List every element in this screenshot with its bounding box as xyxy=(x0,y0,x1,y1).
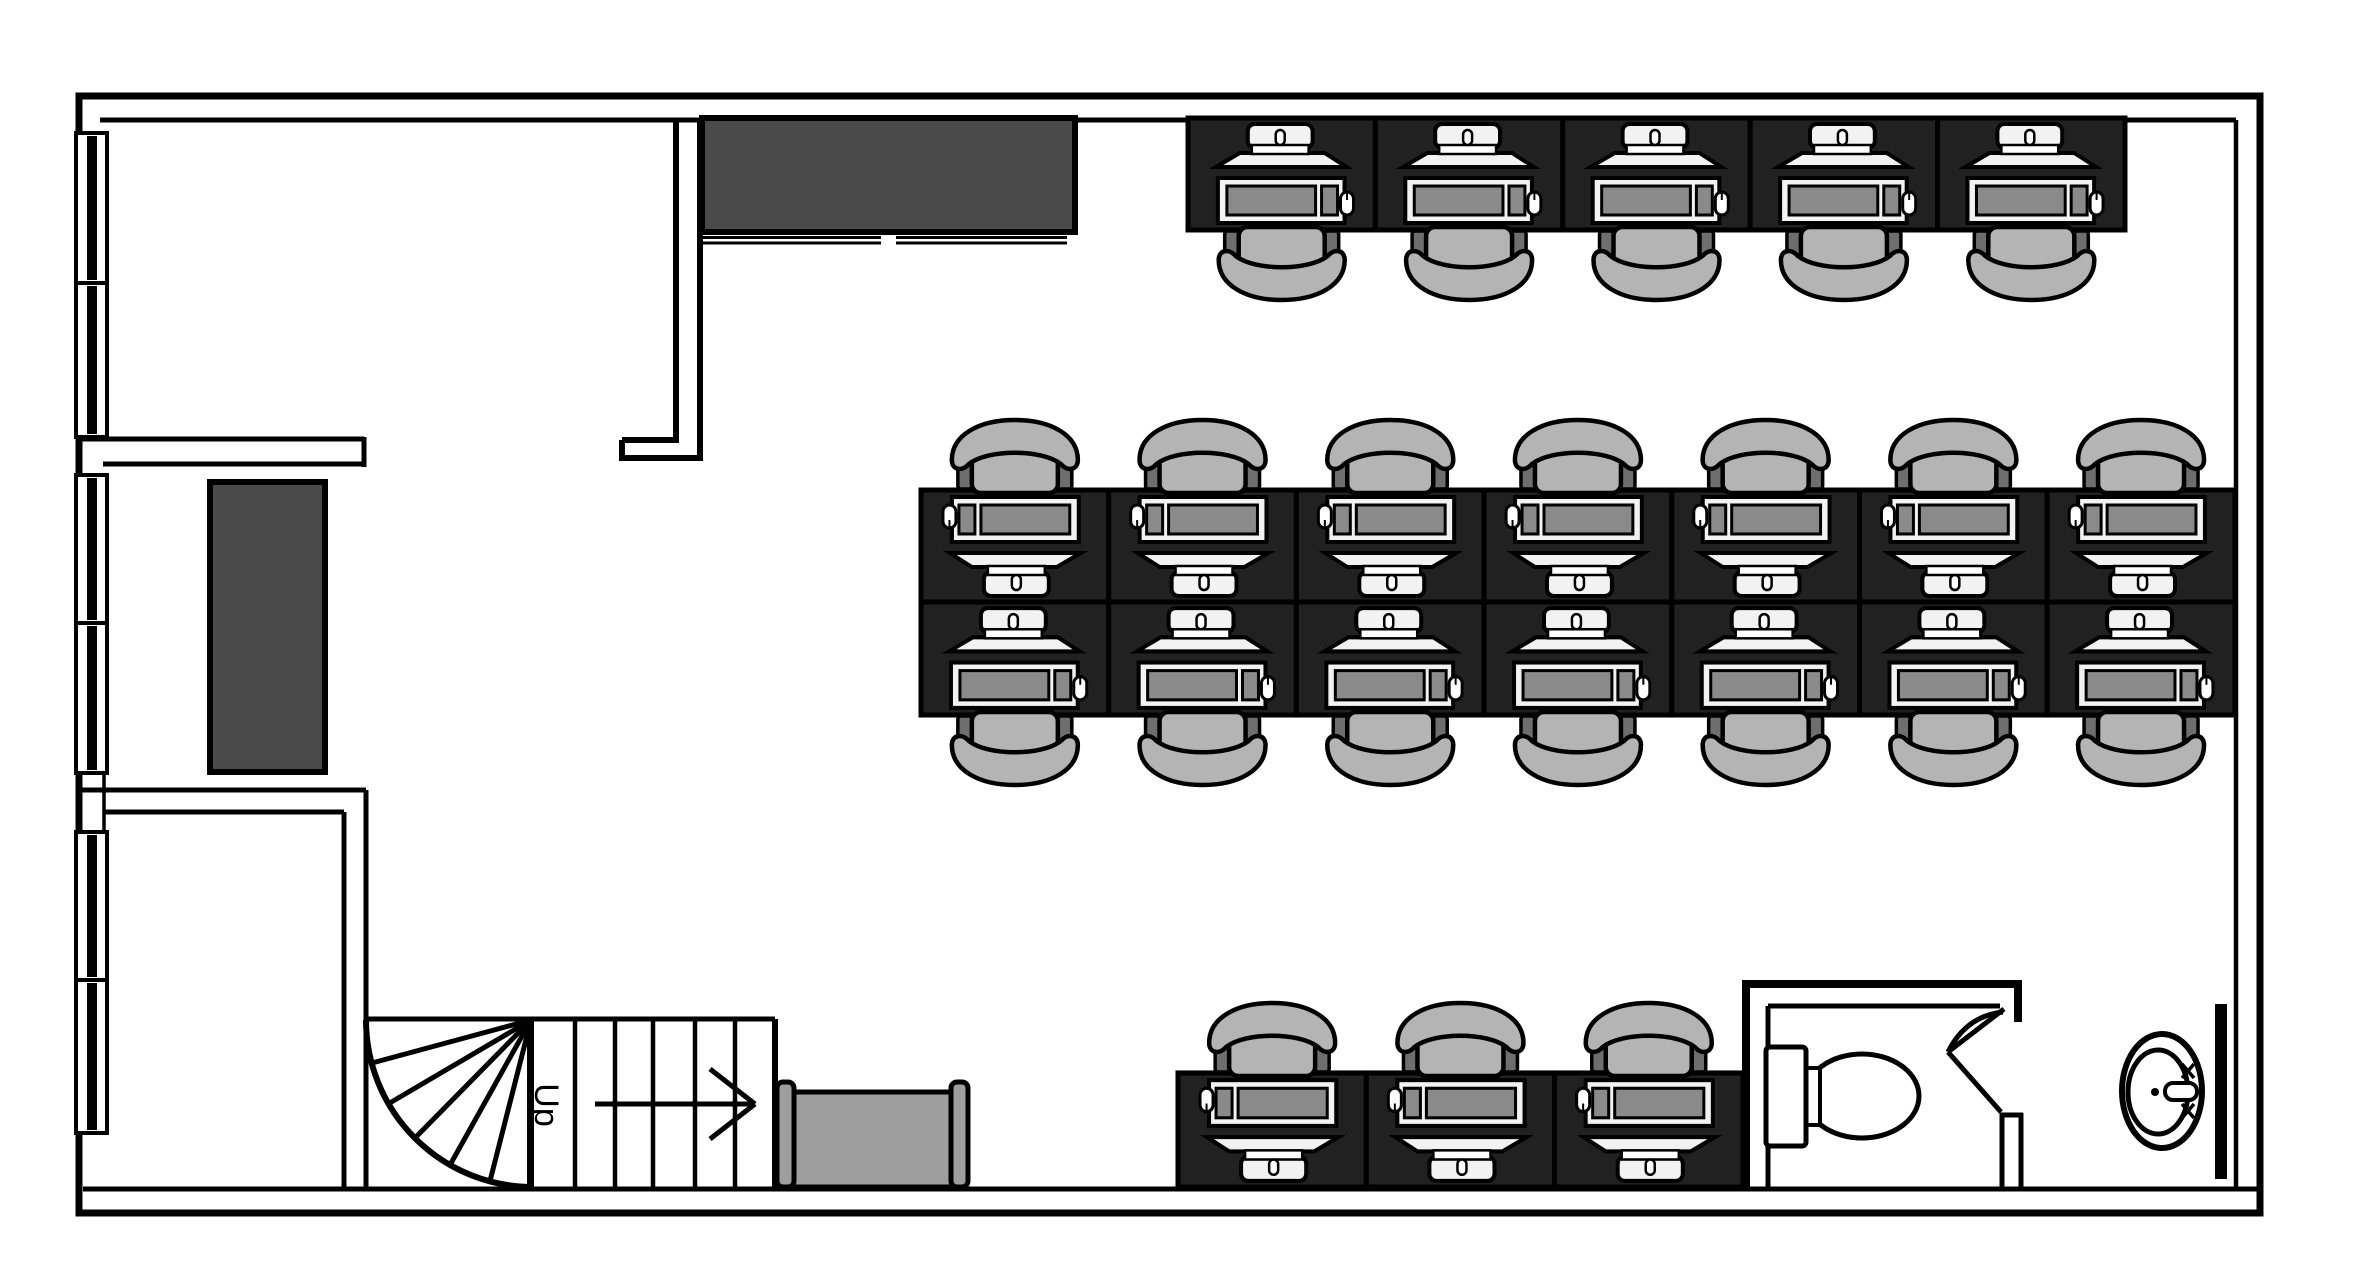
office-chair xyxy=(2078,712,2204,785)
office-chair xyxy=(1890,420,2016,493)
office-chair xyxy=(1406,227,1532,300)
office-chair xyxy=(1515,712,1641,785)
faucet-icon xyxy=(2165,1083,2197,1100)
desk xyxy=(1750,118,1937,230)
office-chair xyxy=(1140,712,1266,785)
office-chair xyxy=(1968,227,2094,300)
window-pane xyxy=(87,478,97,620)
office-chair xyxy=(1781,227,1907,300)
window-pane xyxy=(87,286,97,434)
office-chair xyxy=(1209,1003,1335,1076)
desk xyxy=(1938,118,2125,230)
bench-armrest xyxy=(777,1082,794,1187)
window-pane xyxy=(87,136,97,280)
desk xyxy=(1296,490,1484,602)
storage-cabinet xyxy=(210,482,325,772)
desk-row-middle-north xyxy=(921,420,2235,602)
office-chair xyxy=(1586,1003,1712,1076)
washroom xyxy=(1742,980,2023,1191)
left-window-strip xyxy=(76,133,107,1133)
desk xyxy=(1672,602,1860,715)
desk xyxy=(1109,490,1297,602)
office-chair xyxy=(1219,227,1345,300)
wall-radiator xyxy=(2215,1004,2227,1179)
sink-area xyxy=(2122,1004,2227,1179)
desk xyxy=(1484,602,1672,715)
desk-row-middle-south xyxy=(921,602,2235,785)
window-pane xyxy=(87,983,97,1130)
desk xyxy=(1672,490,1860,602)
toilet-tank xyxy=(1766,1047,1806,1146)
office-chair xyxy=(1397,1003,1523,1076)
meeting-room-walls xyxy=(77,118,703,467)
stairs-up-arrow-icon xyxy=(595,1069,755,1139)
desk xyxy=(921,602,1109,715)
desk xyxy=(2047,490,2235,602)
stairs-up-label: Up xyxy=(527,1083,565,1126)
desk xyxy=(1860,602,2048,715)
bench-armrest xyxy=(951,1082,968,1187)
office-chair xyxy=(1327,420,1453,493)
floor-plan-page: Up xyxy=(0,0,2364,1288)
storage-room-walls xyxy=(77,790,366,1189)
desk xyxy=(1109,602,1297,715)
bench-seat xyxy=(790,1092,956,1187)
desk xyxy=(1375,118,1562,230)
office-chair xyxy=(1327,712,1453,785)
door-leaf xyxy=(1948,1009,2004,1052)
bench xyxy=(777,1082,968,1187)
desk xyxy=(1563,118,1750,230)
office-chair xyxy=(1703,420,1829,493)
stair-winder-treads xyxy=(372,1020,531,1181)
desk xyxy=(2047,602,2235,715)
desk-row-bottom xyxy=(1178,1003,1743,1187)
office-chair xyxy=(1890,712,2016,785)
whiteboard-tray xyxy=(702,238,1067,244)
office-chair xyxy=(2078,420,2204,493)
desk xyxy=(1484,490,1672,602)
office-chair xyxy=(1594,227,1720,300)
drain-icon xyxy=(2151,1088,2159,1096)
office-chair xyxy=(952,712,1078,785)
desk xyxy=(1296,602,1484,715)
workstations xyxy=(921,118,2235,1187)
desk-row-top xyxy=(1188,118,2125,300)
staircase: Up xyxy=(366,1019,775,1189)
office-chair xyxy=(1140,420,1266,493)
desk xyxy=(1366,1073,1554,1187)
desk xyxy=(1555,1073,1743,1187)
desk xyxy=(921,490,1109,602)
floor-plan-svg: Up xyxy=(0,0,2364,1288)
toilet-bowl-icon xyxy=(1805,1054,1919,1138)
office-chair xyxy=(952,420,1078,493)
desk xyxy=(1178,1073,1366,1187)
whiteboard xyxy=(702,118,1075,232)
desk xyxy=(1860,490,2048,602)
office-chair xyxy=(1703,712,1829,785)
window-pane xyxy=(87,835,97,977)
window-pane xyxy=(87,626,97,770)
door-leaf xyxy=(1948,1052,2001,1112)
desk xyxy=(1188,118,1375,230)
office-chair xyxy=(1515,420,1641,493)
